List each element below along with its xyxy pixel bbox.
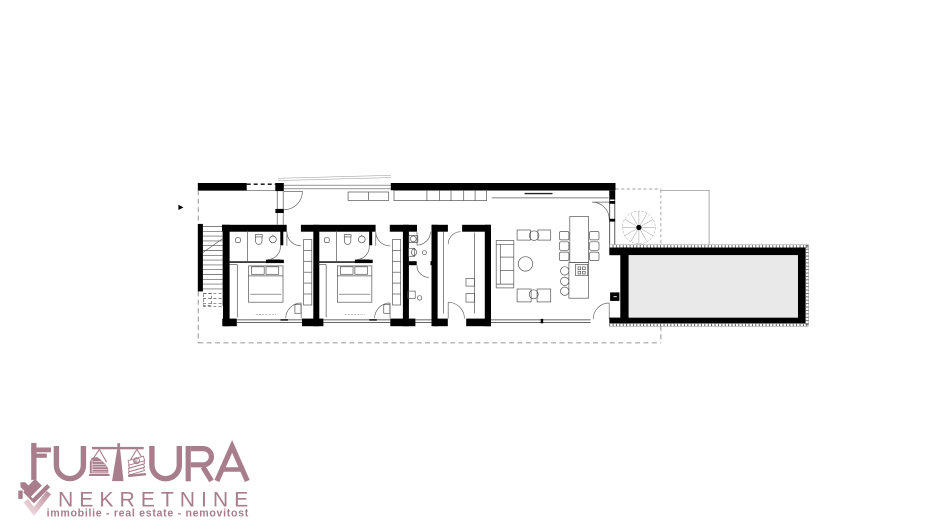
svg-text:immobilie - real estate - nemo: immobilie - real estate - nemovitost <box>47 508 249 520</box>
